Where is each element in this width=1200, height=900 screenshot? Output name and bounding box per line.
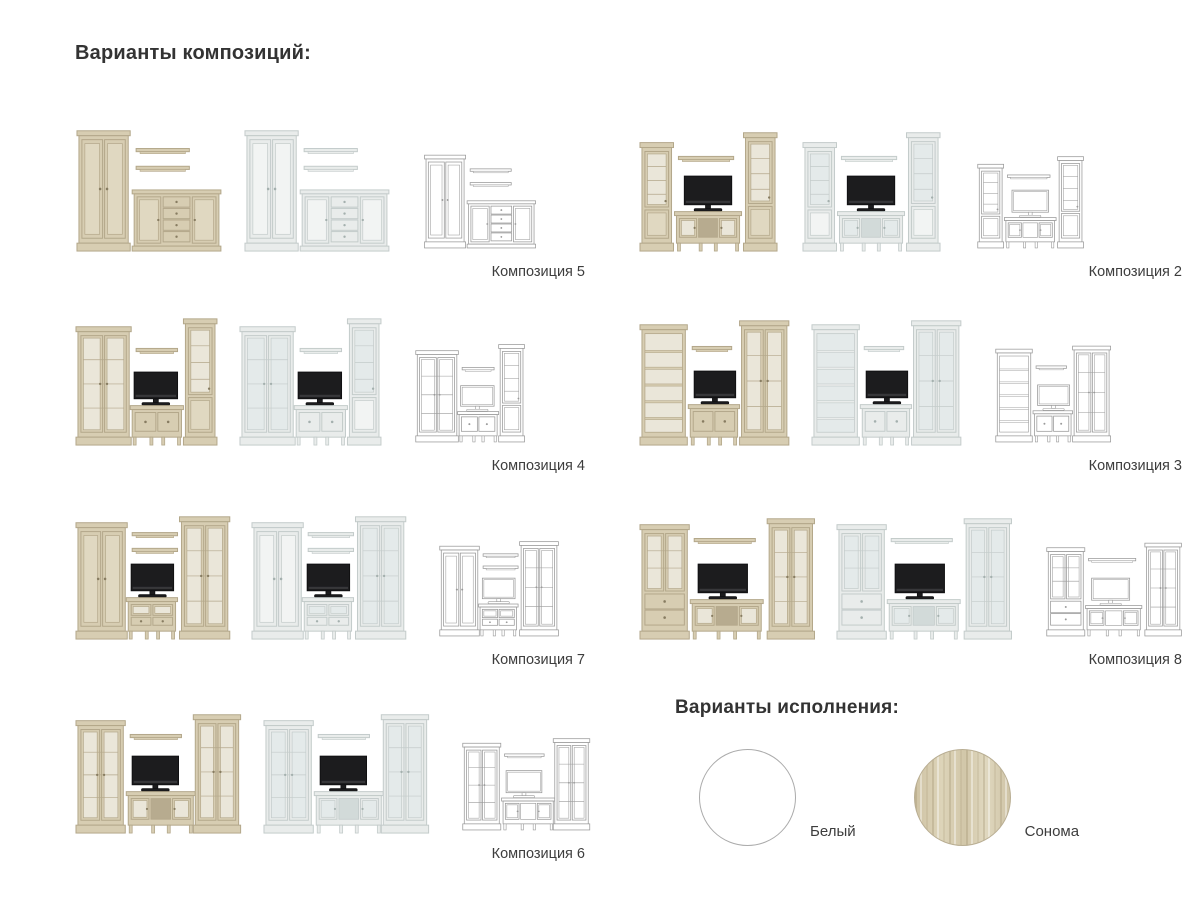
furniture-illustration [423, 143, 537, 251]
left-column: Композиция 5Композиция 4Композиция 7Комп… [75, 115, 603, 891]
white-finish-label: Белый [810, 823, 856, 840]
catalog-page: Варианты композиций: Композиция 5Компози… [0, 0, 1200, 891]
composition-group: Композиция 2 [639, 115, 1200, 280]
furniture-render-sonoma [75, 697, 243, 837]
furniture-render-wireframe [1046, 531, 1183, 639]
composition-renders [75, 115, 603, 255]
furniture-illustration [639, 503, 816, 643]
furniture-illustration [75, 697, 243, 837]
composition-renders [75, 309, 603, 449]
furniture-render-white [239, 309, 383, 449]
sonoma-finish-swatch [914, 749, 1011, 846]
furniture-render-wireframe [995, 337, 1112, 445]
furniture-illustration [639, 309, 791, 449]
furniture-illustration [439, 531, 559, 639]
right-column: Композиция 2Композиция 3Композиция 8 Вар… [639, 115, 1200, 846]
furniture-illustration [263, 697, 431, 837]
furniture-render-wireframe [439, 531, 559, 639]
composition-group: Композиция 6 [75, 697, 603, 862]
furniture-illustration [977, 143, 1087, 251]
furniture-render-white [263, 697, 431, 837]
furniture-illustration [243, 115, 391, 255]
furniture-illustration [802, 115, 945, 255]
furniture-render-wireframe [415, 337, 526, 445]
furniture-illustration [1046, 531, 1183, 639]
finishes-title: Варианты исполнения: [675, 697, 1200, 719]
composition-renders [639, 115, 1200, 255]
furniture-render-wireframe [977, 143, 1087, 251]
composition-columns: Композиция 5Композиция 4Композиция 7Комп… [75, 115, 1200, 891]
composition-caption: Композиция 3 [639, 458, 1200, 474]
furniture-render-sonoma [75, 503, 231, 643]
finish-option-sonoma: Сонома [914, 749, 1079, 846]
composition-caption: Композиция 2 [639, 264, 1200, 280]
furniture-illustration [836, 503, 1013, 643]
furniture-render-sonoma [639, 309, 791, 449]
furniture-illustration [239, 309, 383, 449]
white-finish-swatch [699, 749, 796, 846]
composition-caption: Композиция 5 [75, 264, 603, 280]
furniture-render-white [243, 115, 391, 255]
furniture-illustration [251, 503, 407, 643]
furniture-render-sonoma [639, 503, 816, 643]
composition-renders [75, 697, 603, 837]
sonoma-finish-label: Сонома [1025, 823, 1079, 840]
composition-group: Композиция 3 [639, 309, 1200, 474]
furniture-render-wireframe [423, 143, 537, 251]
composition-caption: Композиция 6 [75, 846, 603, 862]
furniture-illustration [415, 337, 526, 445]
furniture-illustration [75, 115, 223, 255]
furniture-render-sonoma [639, 115, 782, 255]
furniture-render-wireframe [462, 725, 591, 833]
right-column-groups: Композиция 2Композиция 3Композиция 8 [639, 115, 1200, 668]
furniture-render-white [802, 115, 945, 255]
composition-caption: Композиция 8 [639, 652, 1200, 668]
compositions-title: Варианты композиций: [75, 42, 1200, 65]
composition-group: Композиция 7 [75, 503, 603, 668]
composition-group: Композиция 8 [639, 503, 1200, 668]
composition-renders [75, 503, 603, 643]
furniture-illustration [811, 309, 963, 449]
furniture-illustration [462, 725, 591, 833]
furniture-render-sonoma [75, 115, 223, 255]
furniture-render-white [811, 309, 963, 449]
composition-renders [639, 309, 1200, 449]
furniture-render-sonoma [75, 309, 219, 449]
composition-caption: Композиция 4 [75, 458, 603, 474]
furniture-illustration [995, 337, 1112, 445]
furniture-render-white [251, 503, 407, 643]
composition-renders [639, 503, 1200, 643]
furniture-illustration [639, 115, 782, 255]
finish-option-white: Белый [699, 749, 856, 846]
composition-caption: Композиция 7 [75, 652, 603, 668]
furniture-render-white [836, 503, 1013, 643]
finishes-section: Варианты исполнения: Белый Сонома [675, 697, 1200, 846]
finish-swatches: Белый Сонома [699, 749, 1200, 846]
composition-group: Композиция 4 [75, 309, 603, 474]
composition-group: Композиция 5 [75, 115, 603, 280]
furniture-illustration [75, 503, 231, 643]
furniture-illustration [75, 309, 219, 449]
